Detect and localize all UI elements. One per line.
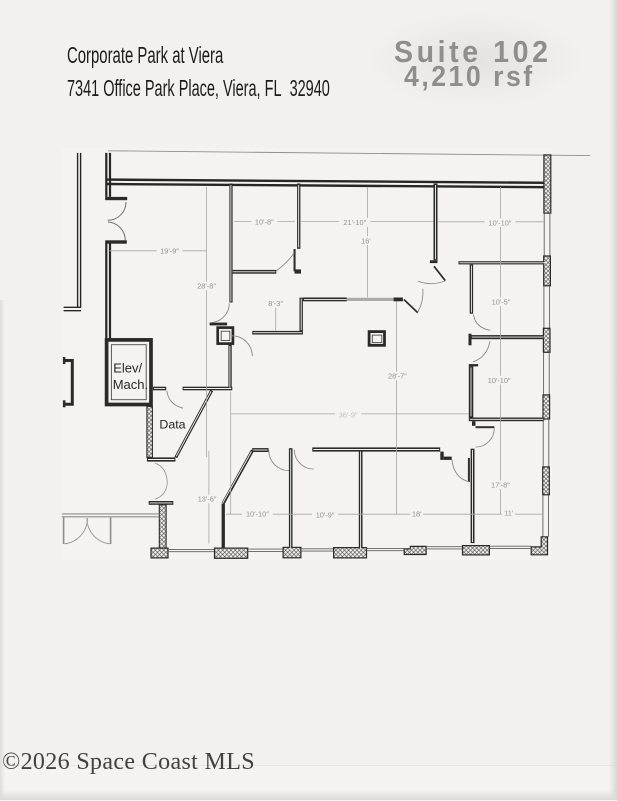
svg-text:8′-3″: 8′-3″ — [268, 299, 283, 308]
svg-text:10′-9″: 10′-9″ — [316, 511, 335, 520]
svg-text:21′-10″: 21′-10″ — [343, 218, 366, 227]
svg-text:19′-9″: 19′-9″ — [160, 247, 179, 256]
svg-text:10′-8″: 10′-8″ — [255, 217, 274, 226]
svg-text:10′-10″: 10′-10″ — [489, 218, 512, 227]
svg-text:10′-10″: 10′-10″ — [488, 376, 511, 385]
svg-text:13′-6″: 13′-6″ — [198, 495, 217, 504]
svg-text:36′-9″: 36′-9″ — [339, 411, 358, 420]
svg-text:10′-10″: 10′-10″ — [246, 510, 269, 519]
svg-text:18′: 18′ — [412, 509, 422, 518]
svg-text:Mach.: Mach. — [113, 377, 148, 392]
svg-text:Elev/: Elev/ — [113, 360, 142, 375]
svg-text:16′: 16′ — [361, 236, 371, 245]
svg-text:28′-8″: 28′-8″ — [197, 282, 216, 291]
svg-text:11′: 11′ — [504, 508, 514, 517]
svg-text:Data: Data — [159, 418, 185, 432]
svg-text:10′-5″: 10′-5″ — [492, 298, 511, 307]
svg-text:28′-7″: 28′-7″ — [388, 372, 407, 381]
svg-text:17′-8″: 17′-8″ — [491, 481, 510, 490]
